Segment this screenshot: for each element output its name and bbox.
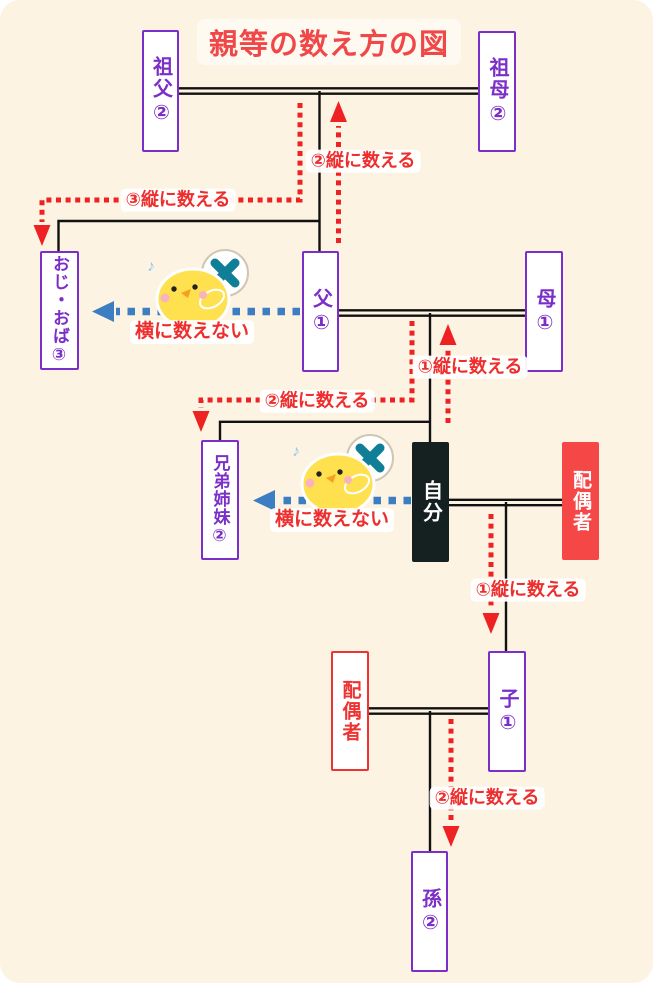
label-count2-to-siblings: ②縦に数える: [260, 390, 375, 413]
node-spouse-of-child: 配偶者: [331, 651, 369, 771]
label-count2-to-grandparents: ②縦に数える: [306, 150, 421, 173]
diagram-canvas: ♪: [0, 0, 653, 983]
node-grandchild: 孫②: [411, 851, 448, 972]
label-count1-to-parents: ①縦に数える: [413, 356, 528, 379]
connector-layer: ♪: [0, 0, 653, 983]
node-grandfather: 祖父②: [142, 30, 179, 152]
node-self: 自分: [412, 442, 449, 562]
label-count3-to-uncle-aunt: ③縦に数える: [121, 189, 236, 212]
chick-mascot-lower: [292, 435, 393, 517]
node-siblings: 兄弟姉妹②: [201, 440, 239, 560]
label-count2-to-grandchild: ②縦に数える: [430, 787, 545, 810]
label-count1-to-child: ①縦に数える: [471, 579, 586, 602]
node-father: 父①: [302, 251, 339, 372]
node-spouse-of-self: 配偶者: [562, 442, 599, 560]
diagram-title: 親等の数え方の図: [197, 19, 461, 65]
node-mother: 母①: [525, 251, 563, 372]
node-grandmother: 祖母②: [478, 31, 516, 152]
node-uncle-aunt: おじ・おば③: [40, 251, 79, 370]
label-no-horizontal-lower: 横に数えない: [270, 508, 394, 532]
label-no-horizontal-upper: 横に数えない: [130, 320, 254, 344]
node-child: 子①: [488, 651, 526, 772]
